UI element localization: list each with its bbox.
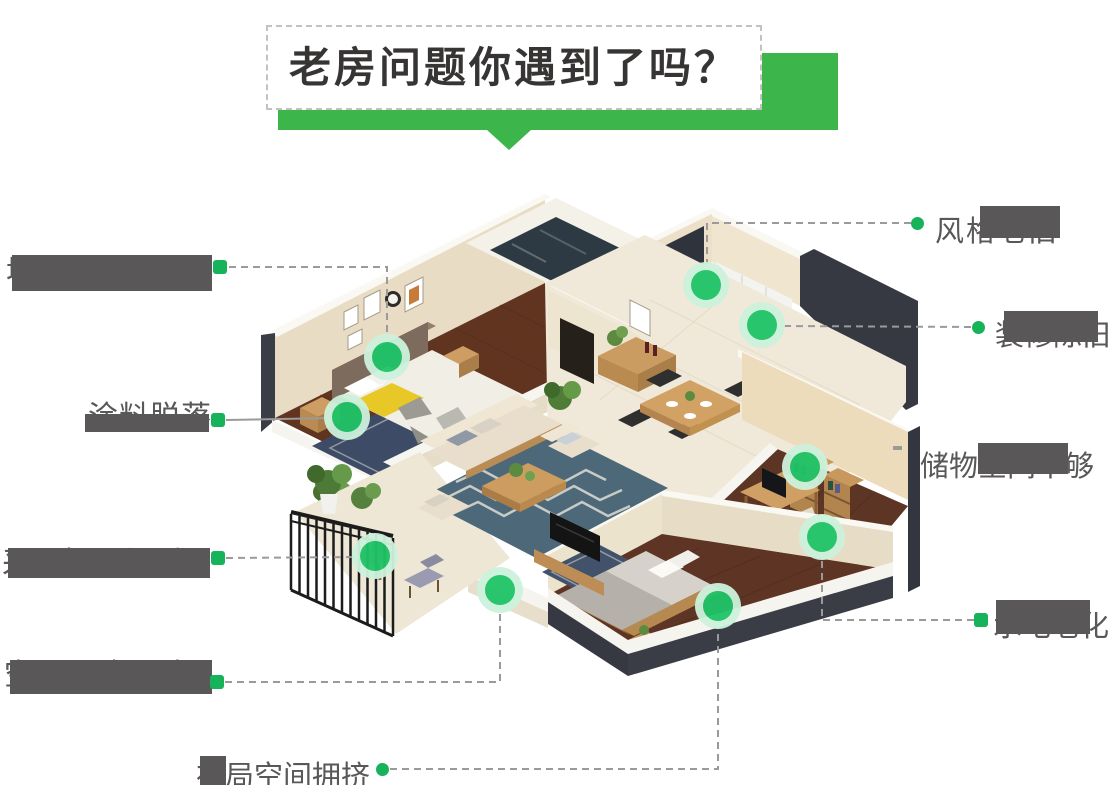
- issue-dot-decor-outdated: [739, 302, 785, 348]
- redaction-box: [980, 206, 1060, 238]
- redaction-box: [12, 255, 212, 291]
- issue-dot-style-outdated: [683, 262, 729, 308]
- redaction-box: [10, 660, 212, 694]
- callout-marker-layout-crowded: [376, 763, 389, 776]
- issue-dot-space-congested: [477, 567, 523, 613]
- callout-marker-paint-peeling: [211, 413, 225, 427]
- outer-wall: [908, 426, 920, 592]
- issue-dot-paint-peeling: [324, 394, 370, 440]
- callout-marker-style-outdated: [911, 217, 924, 230]
- redaction-box: [85, 414, 209, 432]
- issue-dot-wall-mold: [364, 334, 410, 380]
- callout-marker-decor-outdated: [972, 321, 985, 334]
- issue-dot-plumbing-aging: [799, 514, 845, 560]
- callout-marker-space-congested: [210, 675, 224, 689]
- redaction-box: [1004, 311, 1098, 342]
- poster: 墙面发霉 涂料脱落 采光昏暗 空间拥堵 布局空间拥挤 风格老旧 装修陈旧 储物空…: [0, 0, 1114, 785]
- redaction-box: [978, 443, 1068, 474]
- callout-marker-poor-lighting: [211, 551, 225, 565]
- redaction-box: [200, 756, 226, 785]
- redaction-box: [996, 600, 1090, 634]
- redaction-box: [8, 548, 210, 578]
- connector-stub: [893, 446, 902, 450]
- issue-dot-poor-lighting: [352, 533, 398, 579]
- callout-marker-wall-mold: [213, 260, 227, 274]
- issue-dot-layout-crowded: [695, 583, 741, 629]
- callout-marker-plumbing-aging: [974, 613, 988, 627]
- issue-dot-storage-insufficient: [782, 444, 828, 490]
